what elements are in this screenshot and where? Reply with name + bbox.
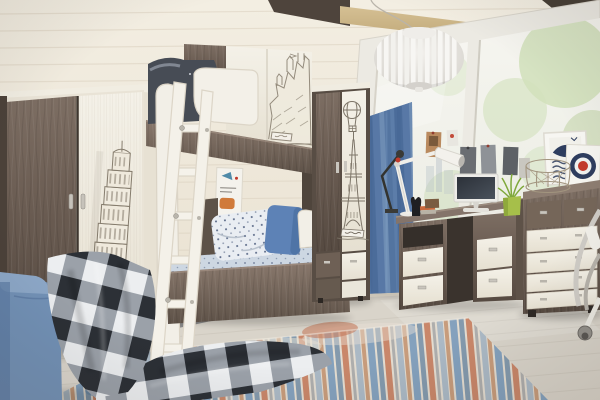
bedroom-photo: Attic kids bedroom with travel-print fur… [0, 0, 600, 400]
vignette-overlay [0, 0, 600, 400]
